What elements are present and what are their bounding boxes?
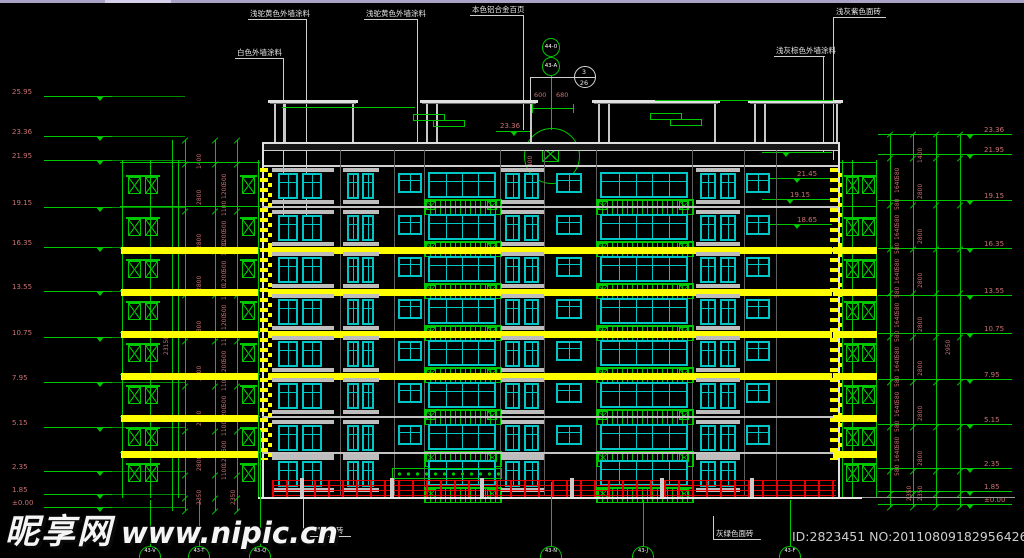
right-annex-balcony-box xyxy=(846,465,859,482)
left-annex-balcony-rail xyxy=(126,301,143,303)
bay-cap-top xyxy=(696,210,740,214)
grid-bubble: 43-F xyxy=(779,546,801,558)
window-mullion xyxy=(462,342,463,364)
window-mullion xyxy=(288,259,289,281)
window-mullion xyxy=(478,258,479,280)
window-mullion xyxy=(288,343,289,365)
window-mullion xyxy=(478,174,479,196)
window-mullion xyxy=(312,427,313,449)
level-mark-value: 19.15 xyxy=(984,192,1018,200)
structural-line xyxy=(340,150,341,495)
base-pier xyxy=(570,478,574,499)
right-annex-balcony-rail xyxy=(860,301,877,303)
annotation-leader-line xyxy=(713,516,714,539)
bay-window xyxy=(362,173,374,199)
window-mullion xyxy=(288,175,289,197)
level-mark-triangle xyxy=(966,248,974,253)
bay-cap-top xyxy=(501,336,544,340)
bay-window xyxy=(505,257,520,283)
right-dim-number: 2800 xyxy=(917,451,924,466)
bay-cap-top xyxy=(343,420,379,424)
base-pier xyxy=(660,478,664,499)
bay-window xyxy=(524,461,539,487)
balcony-window xyxy=(428,382,496,408)
bay-window xyxy=(278,425,298,451)
left-annex-balcony-rail xyxy=(126,175,143,177)
bay-cap-bottom xyxy=(272,326,334,330)
base-railing-post xyxy=(524,480,526,497)
bay-window xyxy=(347,257,359,283)
window-mullion xyxy=(758,259,759,275)
bay-window xyxy=(347,173,359,199)
base-railing-post xyxy=(608,480,610,497)
right-annex-balcony-box xyxy=(846,219,859,236)
window-mullion xyxy=(353,259,354,281)
bay-cap-bottom xyxy=(272,242,334,246)
level-mark-triangle xyxy=(966,295,974,300)
balcony-window xyxy=(600,172,688,198)
window-mullion xyxy=(636,216,637,238)
window-mullion xyxy=(410,301,411,317)
left-annex-balcony-box xyxy=(242,219,255,236)
bay-window xyxy=(362,299,374,325)
window-mullion xyxy=(708,343,709,365)
right-dim-number: 580 xyxy=(894,376,901,387)
window-mullion xyxy=(532,301,533,323)
bay-cap-top xyxy=(272,252,334,256)
pergola-post xyxy=(274,104,276,142)
left-annex-yellow-band xyxy=(121,331,258,338)
base-railing-post xyxy=(342,480,344,497)
structural-line xyxy=(394,150,395,495)
right-dim-number: 580 xyxy=(894,421,901,432)
bay-cap-top xyxy=(696,456,740,460)
base-railing-post xyxy=(720,480,722,497)
left-annex-balcony-rail xyxy=(143,259,160,261)
left-annex-balcony-box xyxy=(145,303,158,320)
right-dim-number: 1400 xyxy=(917,148,924,163)
structural-line xyxy=(776,150,777,495)
floor-slab-line xyxy=(262,452,838,454)
bay-cap-bottom xyxy=(501,326,544,330)
window-mullion xyxy=(569,175,570,191)
left-annex-balcony-box xyxy=(242,429,255,446)
right-dim-number: 2800 xyxy=(917,273,924,288)
base-railing-post xyxy=(650,480,652,497)
window xyxy=(398,341,422,361)
right-annex-balcony-rail xyxy=(860,463,877,465)
material-annotation-label: 白色外墙涂料 xyxy=(237,49,282,57)
left-annex-balcony-box xyxy=(145,177,158,194)
annotation-underline xyxy=(834,17,886,18)
window-mullion xyxy=(728,175,729,197)
material-annotation-label: 浅驼黄色外墙涂料 xyxy=(250,10,310,18)
window-mullion xyxy=(532,343,533,365)
left-annex-balcony-rail xyxy=(240,385,257,387)
base-railing-post xyxy=(776,480,778,497)
bay-window xyxy=(720,383,736,409)
bay-cap-top xyxy=(272,420,334,424)
left-annex-balcony-rail xyxy=(143,463,160,465)
bay-window xyxy=(302,299,322,325)
level-mark-triangle xyxy=(966,504,974,509)
bay-cap-bottom xyxy=(272,410,334,414)
balcony-window xyxy=(428,256,496,282)
level-mark-triangle xyxy=(966,200,974,205)
left-annex-yellow-band xyxy=(121,373,258,380)
bay-cap-bottom xyxy=(696,326,740,330)
window-mullion xyxy=(532,259,533,281)
level-mark-value: 13.55 xyxy=(12,283,42,291)
right-chain-line xyxy=(890,134,891,507)
window-mullion xyxy=(669,342,670,364)
level-mark-triangle xyxy=(96,96,104,101)
right-dim-number: 580 xyxy=(894,287,901,298)
base-railing-post xyxy=(818,480,820,497)
window-mullion xyxy=(446,300,447,322)
base-railing-post xyxy=(510,480,512,497)
bay-window xyxy=(302,425,322,451)
pergola-post xyxy=(352,104,354,142)
left-annex-balcony-box xyxy=(128,177,141,194)
window-mullion xyxy=(619,384,620,406)
window-mullion xyxy=(569,301,570,317)
bay-cap-top xyxy=(343,378,379,382)
bay-window xyxy=(278,215,298,241)
bay-cap-top xyxy=(272,378,334,382)
right-annex-balcony-box xyxy=(846,303,859,320)
window-transom xyxy=(602,181,686,182)
balcony-window xyxy=(600,382,688,408)
bay-window xyxy=(505,299,520,325)
window-mullion xyxy=(708,385,709,407)
bay-window xyxy=(700,173,716,199)
left-annex-line xyxy=(258,160,259,498)
bay-cap-top xyxy=(696,420,740,424)
left-annex-balcony-box xyxy=(128,303,141,320)
right-total-line xyxy=(960,134,961,507)
bay-window xyxy=(278,341,298,367)
bay-window xyxy=(524,257,539,283)
left-annex-balcony-rail xyxy=(143,385,160,387)
bay-cap-top xyxy=(272,294,334,298)
right-dim-number: 2800 xyxy=(917,229,924,244)
left-annex-balcony-rail xyxy=(126,343,143,345)
left-annex-balcony-rail xyxy=(240,427,257,429)
right-annex-balcony-box xyxy=(862,261,875,278)
level-mark-value: 2.35 xyxy=(984,460,1018,468)
window-mullion xyxy=(758,427,759,443)
window-top-border xyxy=(0,0,1024,3)
left-annex-balcony-rail xyxy=(126,259,143,261)
material-annotation-label: 浅灰紫色面砖 xyxy=(836,8,881,16)
level-mark-triangle xyxy=(96,136,104,141)
bay-window xyxy=(505,383,520,409)
base-railing-post xyxy=(552,480,554,497)
window-mullion xyxy=(462,384,463,406)
base-railing-post xyxy=(804,480,806,497)
level-mark-value: 25.95 xyxy=(12,88,42,96)
left-annex-balcony-rail xyxy=(143,217,160,219)
annotation-leader-line xyxy=(833,17,834,160)
bay-window xyxy=(278,461,298,487)
window-mullion xyxy=(312,301,313,323)
bay-window xyxy=(700,341,716,367)
window-mullion xyxy=(669,216,670,238)
roof-dim-tick xyxy=(532,104,533,113)
window-mullion xyxy=(619,216,620,238)
right-dim-number: 2800 xyxy=(917,184,924,199)
left-dim-number: 1200 xyxy=(221,184,228,199)
parapet-line xyxy=(262,165,838,167)
base-railing-post xyxy=(538,480,540,497)
annotation-underline xyxy=(235,58,284,59)
balcony-window xyxy=(600,298,688,324)
grid-bubble: 43-N xyxy=(540,546,562,558)
window-mullion xyxy=(728,217,729,239)
base-railing-post xyxy=(692,480,694,497)
window-mullion xyxy=(478,342,479,364)
image-id-text: ID:2823451 NO:20110809182956426000 xyxy=(792,529,1024,544)
left-dim-number: 2800 xyxy=(196,190,203,205)
bay-window xyxy=(505,341,520,367)
window xyxy=(556,425,582,445)
window-mullion xyxy=(636,426,637,448)
bay-window xyxy=(700,299,716,325)
base-pier xyxy=(390,478,394,499)
bay-cap-top xyxy=(501,252,544,256)
left-annex-yellow-band xyxy=(121,451,258,458)
balcony-window xyxy=(428,172,496,198)
base-railing-post xyxy=(384,480,386,497)
pergola-post xyxy=(530,104,532,142)
bay-cap-top xyxy=(501,420,544,424)
detail-ref-divider xyxy=(575,77,595,78)
left-annex-balcony-box xyxy=(242,177,255,194)
bay-cap-bottom xyxy=(343,326,379,330)
roof-level-text: 23.36 xyxy=(500,122,520,130)
level-mark-value: 19.15 xyxy=(12,199,42,207)
left-annex-balcony-rail xyxy=(143,175,160,177)
bay-window xyxy=(302,173,322,199)
window-mullion xyxy=(669,426,670,448)
right-annex-balcony-box xyxy=(846,387,859,404)
pergola-post xyxy=(714,104,716,142)
right-annex-balcony-box xyxy=(862,345,875,362)
base-railing-post xyxy=(566,480,568,497)
window-mullion xyxy=(636,342,637,364)
bay-cap-bottom xyxy=(343,284,379,288)
window-mullion xyxy=(532,463,533,485)
right-chain-tick xyxy=(887,504,893,510)
level-mark-value: 21.95 xyxy=(12,152,42,160)
level-mark-triangle xyxy=(786,199,794,204)
bay-window xyxy=(362,461,374,487)
base-railing-post xyxy=(594,480,596,497)
window-mullion xyxy=(368,217,369,239)
left-annex-balcony-box xyxy=(145,429,158,446)
window-mullion xyxy=(368,301,369,323)
left-annex-yellow-band xyxy=(121,415,258,422)
material-annotation-label: 灰绿色面砖 xyxy=(716,530,754,538)
bay-cap-bottom xyxy=(696,200,740,204)
left-annex-balcony-rail xyxy=(126,463,143,465)
cad-elevation-drawing: 白色外墙涂料浅驼黄色外墙涂料浅驼黄色外墙涂料本色铝合金百页浅灰紫色面砖浅灰棕色外… xyxy=(0,0,1024,558)
pergola-post xyxy=(598,104,600,142)
right-annex-balcony-box xyxy=(862,465,875,482)
window-mullion xyxy=(513,259,514,281)
level-mark-line xyxy=(762,199,832,200)
bay-window xyxy=(362,425,374,451)
bay-cap-top xyxy=(272,168,334,172)
bay-window xyxy=(720,341,736,367)
right-annex-balcony-rail xyxy=(844,385,861,387)
window-mullion xyxy=(462,300,463,322)
left-annex-balcony-box xyxy=(128,387,141,404)
window-mullion xyxy=(353,217,354,239)
window-mullion xyxy=(532,217,533,239)
base-railing-post xyxy=(412,480,414,497)
window-mullion xyxy=(513,175,514,197)
level-mark-value: 19.15 xyxy=(790,191,810,199)
bay-window xyxy=(700,461,716,487)
left-annex-balcony-rail xyxy=(143,343,160,345)
right-annex-balcony-box xyxy=(846,177,859,194)
right-annex-balcony-rail xyxy=(844,217,861,219)
ground-line xyxy=(258,497,862,499)
window xyxy=(398,383,422,403)
balcony-window xyxy=(428,340,496,366)
left-annex-balcony-box xyxy=(145,387,158,404)
base-railing-post xyxy=(734,480,736,497)
level-mark-triangle xyxy=(96,247,104,252)
right-annex-balcony-rail xyxy=(844,175,861,177)
window-mullion xyxy=(353,427,354,449)
bay-cap-bottom xyxy=(343,368,379,372)
bay-cap-top xyxy=(501,210,544,214)
window-mullion xyxy=(368,175,369,197)
pergola-cap-shadow xyxy=(270,103,356,104)
bay-cap-top xyxy=(343,210,379,214)
pergola-post xyxy=(608,104,610,142)
bay-cap-top xyxy=(272,336,334,340)
bay-window xyxy=(700,257,716,283)
bay-window xyxy=(720,257,736,283)
level-mark-triangle xyxy=(966,134,974,139)
left-dim-number: 2800 xyxy=(196,456,203,471)
roof-dim-text: 680 xyxy=(556,91,568,99)
left-annex-top-line xyxy=(120,162,260,163)
right-annex-balcony-rail xyxy=(860,343,877,345)
detail-ref-sheet: 26 xyxy=(574,79,594,87)
left-annex-balcony-box xyxy=(242,387,255,404)
level-mark-value: 7.95 xyxy=(12,374,42,382)
left-dim-number: 1100 xyxy=(221,421,228,436)
quoin-strip xyxy=(260,168,268,460)
level-mark-line-ext xyxy=(112,96,185,97)
right-annex-balcony-box xyxy=(862,177,875,194)
window-mullion xyxy=(708,301,709,323)
right-dim-number: 580 xyxy=(894,331,901,342)
louver-blade xyxy=(433,120,465,127)
window-transom xyxy=(602,307,686,308)
right-chain-tick xyxy=(933,504,939,510)
bay-window xyxy=(505,173,520,199)
material-annotation-label: 浅驼黄色外墙涂料 xyxy=(366,10,426,18)
window-mullion xyxy=(353,175,354,197)
window xyxy=(746,173,770,193)
material-annotation-label: 本色铝合金百页 xyxy=(472,6,525,14)
bay-cap-bottom xyxy=(696,410,740,414)
window-mullion xyxy=(708,175,709,197)
left-annex-balcony-box xyxy=(128,465,141,482)
base-railing-post xyxy=(622,480,624,497)
window-mullion xyxy=(462,216,463,238)
annotation-underline xyxy=(364,19,418,20)
bay-window xyxy=(524,173,539,199)
balcony-window xyxy=(600,256,688,282)
bay-window xyxy=(347,425,359,451)
bay-window xyxy=(524,215,539,241)
pergola-post xyxy=(836,104,838,142)
level-mark-value: 10.75 xyxy=(984,325,1018,333)
pergola-post xyxy=(754,104,756,142)
window-mullion xyxy=(312,343,313,365)
grid-axis-line xyxy=(790,500,791,546)
right-dim-number: 580 xyxy=(894,465,901,476)
window-mullion xyxy=(758,217,759,233)
window xyxy=(746,257,770,277)
bay-cap-top xyxy=(272,456,334,460)
window-mullion xyxy=(619,258,620,280)
quoin-strip-inner xyxy=(838,173,842,460)
right-annex-balcony-rail xyxy=(860,217,877,219)
material-annotation-label: 浅灰棕色外墙涂料 xyxy=(776,47,836,55)
window-mullion xyxy=(462,426,463,448)
bay-cap-bottom xyxy=(696,242,740,246)
level-mark-line xyxy=(762,152,832,153)
base-pier xyxy=(300,478,304,499)
bay-window xyxy=(505,461,520,487)
level-mark-value: 13.55 xyxy=(984,287,1018,295)
louver-leader-line xyxy=(655,100,833,101)
window-mullion xyxy=(728,427,729,449)
window-mullion xyxy=(669,174,670,196)
base-railing-post xyxy=(272,480,274,497)
right-dim-number: 1640 xyxy=(894,313,901,328)
window-mullion xyxy=(728,385,729,407)
window-mullion xyxy=(636,300,637,322)
grid-bubble: 44-0 xyxy=(542,38,560,57)
level-mark-triangle xyxy=(782,152,790,157)
right-dim-number: 2350 xyxy=(917,486,924,501)
level-mark-value: 5.15 xyxy=(12,419,42,427)
right-dim-number: 1640 xyxy=(894,402,901,417)
bay-window xyxy=(302,461,322,487)
left-annex-balcony-box xyxy=(145,261,158,278)
annotation-underline xyxy=(248,19,307,20)
window-mullion xyxy=(288,427,289,449)
window-mullion xyxy=(368,463,369,485)
level-mark-value: 16.35 xyxy=(12,239,42,247)
structural-line xyxy=(744,150,745,495)
window-mullion xyxy=(353,385,354,407)
left-annex-balcony-rail xyxy=(126,385,143,387)
window-transom xyxy=(602,223,686,224)
window-mullion xyxy=(478,300,479,322)
bay-window xyxy=(302,257,322,283)
scrollbar-thumb[interactable] xyxy=(105,0,171,3)
